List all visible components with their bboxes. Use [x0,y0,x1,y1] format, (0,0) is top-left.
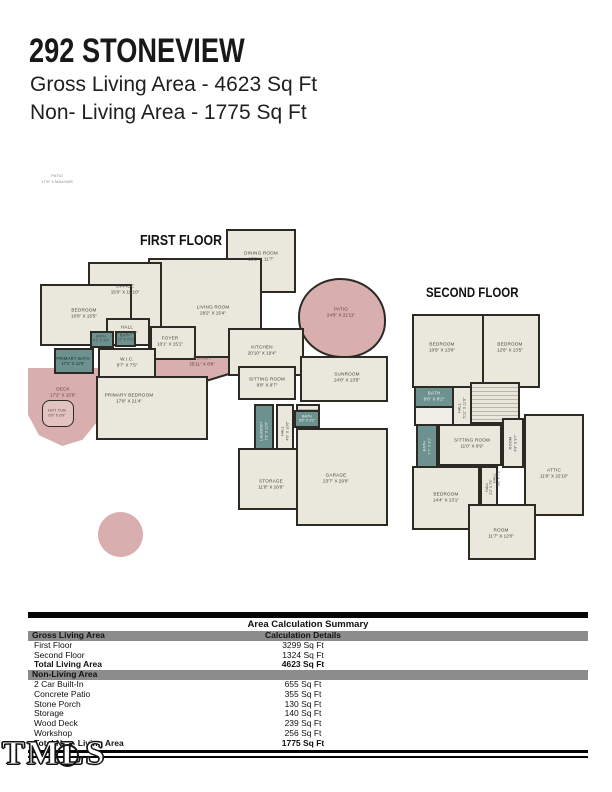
second-floor-heading: SECOND FLOOR [426,284,518,300]
room-dims: 11'8" X 16'8" [258,484,284,490]
label-deck: DECK 17'2" X 15'9" [50,386,76,397]
first-floor-heading: FIRST FLOOR [140,232,222,249]
room-dims: 17'4" X 11'9" [56,361,89,366]
label2-hall-v3: HALL 2'2" X 7'2" [485,479,494,494]
room-dims: 13'2" X 11'7" [244,256,278,262]
room-dims: 4'0" X 10'6" [285,421,290,440]
room-dims: 29'2" X 15'4" [197,310,230,316]
room-dims: 8'0" X 8'2" [424,396,445,402]
room-dims: 12'6" X 13'5" [497,347,523,353]
room-dims: 7'3" X 11'6" [264,421,269,440]
room-dims: 4'11" X 2'10" [115,338,135,342]
label2-hall-v: HALL 5'11" X 11'9" [457,398,466,419]
room-name: BEDROOM [497,341,523,347]
table-bottom-rule-thick [28,750,588,753]
room-dims: 15'0" X 15'10" [111,289,140,295]
room2-attic [524,414,584,516]
label-porch: PORCH 25'11" X 8'8" [189,355,215,366]
label2-bath-top: BATH 8'0" X 8'2" [424,390,445,401]
patio-area [298,278,386,358]
label-primary-bath: PRIMARY BATH 17'4" X 11'9" [56,356,89,367]
room-name: BEDROOM [433,491,459,497]
label-hall2: HALL 4'0" X 10'6" [280,421,289,440]
room-name: SITTING ROOM [249,376,285,382]
tmls-watermark-logo: TMLS [2,735,106,773]
room-dims: 9'7" X 7'5" [117,362,138,368]
room-name: LIVING ROOM [197,304,230,310]
label2-bedroom-tr: BEDROOM 12'6" X 13'5" [497,341,523,352]
site-note-dims: 17'6" X MAX/VAR [24,179,90,185]
room-dims: 5'6" X 3'2" [299,419,315,423]
room-dims: 4'9" X 9'7" [513,434,518,451]
room-dims: 24'8" X 21'11" [327,312,355,318]
room-dims: 25'11" X 8'8" [189,361,215,367]
room-name: PRIMARY BEDROOM [105,392,154,398]
label2-bedroom-tl: BEDROOM 10'9" X 13'0" [429,341,455,352]
room-dims: 10'9" X 15'5" [71,313,97,319]
table-bottom-rule-thin [28,756,588,758]
room-dims: 23'7" X 29'0" [323,478,349,484]
room-name: STORAGE [258,478,284,484]
label2-hall-v2: HALL 3'8" X 7'2" [493,470,502,486]
label2-bedroom-b: BEDROOM 14'4" X 13'1" [433,491,459,502]
label2-attic: ATTIC 11'8" X 22'10" [540,467,568,478]
room-name: GARAGE [323,472,349,478]
label-living: LIVING ROOM 29'2" X 15'4" [197,304,230,315]
tmls-logo-circle-icon [56,744,79,767]
room-name: KITCHEN [248,344,277,350]
room-dims: 2'2" X 7'2" [489,479,493,494]
row-value: 4623 Sq Ft [163,660,443,670]
room-name: BEDROOM [71,307,97,313]
room-dims: 10'9" X 13'0" [429,347,455,353]
label-bath-a: BATH 5'1" X 3'8" [93,335,109,344]
room-dims: 6'9" X 6'9" [48,413,66,418]
room-dims: 20'10" X 19'4" [248,350,277,356]
label-primary-bedroom: PRIMARY BEDROOM 17'8" X 21'4" [105,392,154,403]
room-dims: 24'0" X 13'5" [334,377,360,383]
label-bath-b: BATH 4'11" X 2'10" [115,334,135,343]
label-laundry: LAUNDRY 7'3" X 11'6" [259,421,268,440]
label2-bath-v: BATH 7'7" X 9'1" [422,437,431,454]
label-garage: GARAGE 23'7" X 29'0" [323,472,349,483]
room-dims: 11'7" X 12'0" [488,533,514,539]
label-office: OFFICE 15'0" X 15'10" [111,283,140,294]
label2-sitting: SITTING ROOM 11'0" X 9'9" [454,437,490,448]
room-dims: 14'4" X 13'1" [433,497,459,503]
label-bath-c: BATH 5'6" X 3'2" [299,415,315,424]
room-dims: 11'8" X 22'10" [540,473,568,479]
non-living-line: Non- Living Area - 1775 Sq Ft [30,101,307,125]
label-storage: STORAGE 11'8" X 16'8" [258,478,284,489]
total-living-row: Total Living Area 4623 Sq Ft [28,660,588,670]
room-name: SUNROOM [334,371,360,377]
label2-room-b: ROOM 11'7" X 12'0" [488,527,514,538]
row-value: 1775 Sq Ft [163,739,443,749]
landscape-circle [98,512,143,557]
room-dims: 11'0" X 9'9" [454,443,490,449]
room-name: DINING ROOM [244,250,278,256]
label2-room-v: ROOM 4'9" X 9'7" [508,434,517,451]
floorplan-page: 292 STONEVIEW Gross Living Area - 4623 S… [0,0,612,792]
label-wic: W.I.C. 9'7" X 7'5" [117,356,138,367]
label-patio: PATIO 24'8" X 21'11" [327,306,355,317]
room-dims: 17'8" X 21'4" [105,398,154,404]
room-dims: 5'1" X 3'8" [93,339,109,343]
page-title: 292 STONEVIEW [29,32,245,71]
room-name: BEDROOM [429,341,455,347]
label-bedroom1: BEDROOM 10'9" X 15'5" [71,307,97,318]
room-dims: 7'7" X 9'1" [427,437,432,454]
label-foyer: FOYER 10'1" X 15'1" [157,335,183,346]
room-dims: 3'8" X 7'2" [497,470,501,486]
area-summary-table: Area Calculation Summary Gross Living Ar… [28,612,588,758]
room-dims: 10'1" X 15'1" [157,341,183,347]
total-nonliving-row: Total Non- Living Area 1775 Sq Ft [28,739,588,749]
label-sunroom: SUNROOM 24'0" X 13'5" [334,371,360,382]
room-dims: 9'8" X 9'7" [249,382,285,388]
site-note-patio: PATIO 17'6" X MAX/VAR [24,173,90,184]
label-sitting1: SITTING ROOM 9'8" X 9'7" [249,376,285,387]
room-name: SITTING ROOM [454,437,490,443]
gross-living-line: Gross Living Area - 4623 Sq Ft [30,73,317,97]
room-dims: 5'11" X 11'9" [462,398,467,419]
room2-closets [414,406,454,426]
label-hot-tub: HOT TUB 6'9" X 6'9" [48,408,66,417]
label-dining: DINING ROOM 13'2" X 11'7" [244,250,278,261]
room-primary-bedroom [96,376,208,440]
label-kitchen: KITCHEN 20'10" X 19'4" [248,344,277,355]
room-dims: 17'2" X 15'9" [50,392,76,398]
